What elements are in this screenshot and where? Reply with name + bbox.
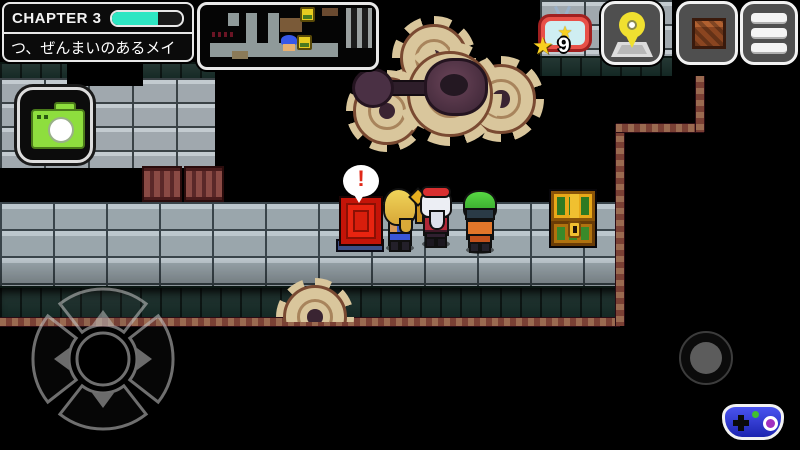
minimap[interactable] [197, 2, 379, 70]
crate-icon [692, 18, 726, 49]
chapter-progress-fill [112, 12, 158, 25]
action-button-cap [690, 342, 722, 374]
red-book-switch [341, 198, 381, 244]
camera-icon [20, 90, 90, 160]
treasure-chest [551, 191, 595, 246]
character-blonde-hero [383, 190, 417, 250]
wind-up-gate [142, 166, 182, 202]
dpad[interactable] [28, 284, 178, 434]
wind-up-gate [184, 166, 224, 202]
game-stage: ! [0, 0, 800, 450]
hamburger-icon [751, 13, 787, 53]
minimap-player-marker [281, 35, 297, 51]
map-pin-icon [604, 4, 660, 62]
storage-button[interactable] [676, 1, 738, 65]
corridor-trim-vertical [616, 124, 624, 326]
corridor-trim-vertical [696, 76, 704, 132]
chapter-progress-bar [110, 10, 184, 27]
star-icon: ★ [532, 32, 554, 61]
gear-hub-hole [440, 74, 468, 96]
minimap-path [228, 13, 239, 26]
minimap-path [268, 13, 279, 47]
gamepad-icon[interactable] [722, 404, 784, 442]
speech-bubble-text: ! [343, 165, 379, 193]
minimap-block [232, 51, 248, 59]
speech-bubble: ! [343, 165, 379, 197]
minimap-wall [212, 32, 234, 37]
chapter-panel: CHAPTER 3 つ、ぜんまいのあるメイ [2, 2, 194, 62]
gear-axle-knob [352, 68, 394, 108]
star-count: 9 [558, 34, 570, 58]
half-gear [276, 274, 354, 322]
menu-button[interactable] [740, 1, 798, 65]
minimap-block [280, 18, 302, 32]
quest-subtitle: つ、ぜんまいのあるメイ [11, 37, 175, 58]
corridor-trim-horizontal [616, 124, 704, 132]
action-button[interactable] [679, 331, 733, 385]
chapter-label: CHAPTER 3 [12, 10, 110, 27]
character-green-ally [463, 192, 497, 252]
minimap-block [322, 8, 338, 16]
minimap-chest-marker [297, 35, 312, 50]
map-button[interactable] [601, 1, 663, 65]
wall-doorway-gap [67, 62, 143, 86]
star-badge[interactable]: ★ ★ 9 [534, 6, 606, 64]
character-silver-ally [419, 186, 453, 246]
minimap-structure [346, 8, 372, 48]
minimap-chest-marker [300, 7, 315, 22]
minimap-path [246, 13, 257, 47]
speech-bubble-tail [353, 193, 365, 203]
camera-button[interactable] [17, 87, 93, 163]
